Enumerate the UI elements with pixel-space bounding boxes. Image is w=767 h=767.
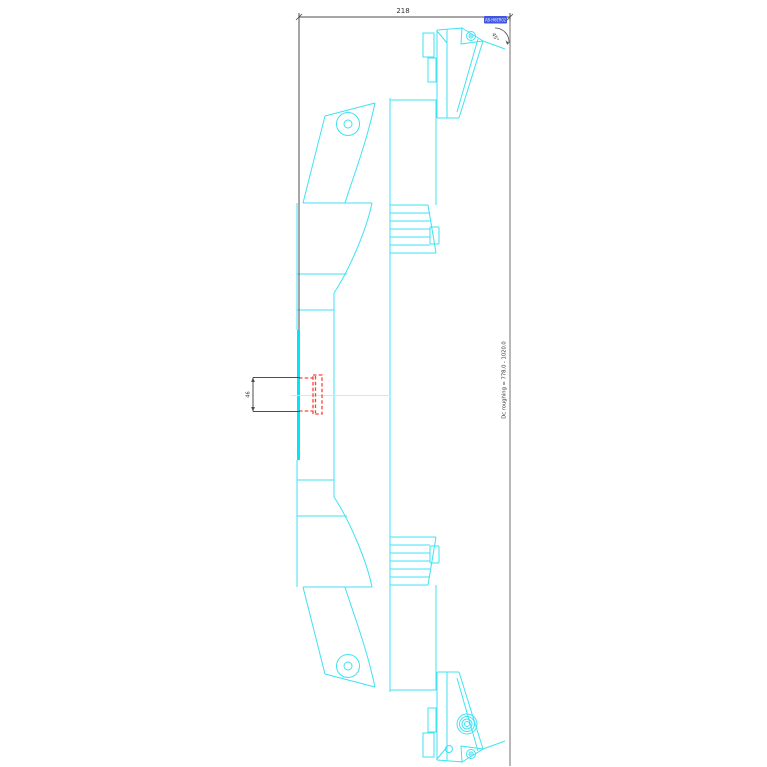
- tool-assembly-bottom: [297, 395, 505, 762]
- tool-assembly-top: [297, 28, 505, 395]
- dc-limit: Dc roughing = 778.0 - 1020.0: [502, 17, 511, 766]
- dc-note-text: Dc roughing = 778.0 - 1020.0: [502, 341, 508, 418]
- height-dimension-text: 46: [246, 391, 252, 397]
- tool-name-badge-text: AB-H6ER02: [485, 18, 506, 24]
- angle-dimension-text: 45°: [490, 32, 500, 43]
- angle-dimension: 45°: [490, 28, 509, 45]
- insert-profile-dashed: [299, 375, 322, 414]
- length-dimension-text: 218: [396, 7, 409, 15]
- stock-height-dimension: 46: [246, 378, 301, 412]
- cad-viewport[interactable]: 46 218 Dc roughing = 778.0 - 1020.0 45° …: [0, 0, 767, 767]
- length-dimension: 218: [296, 7, 513, 330]
- cad-canvas[interactable]: 46 218 Dc roughing = 778.0 - 1020.0 45° …: [0, 0, 767, 767]
- tool-name-badge: AB-H6ER02: [484, 16, 507, 24]
